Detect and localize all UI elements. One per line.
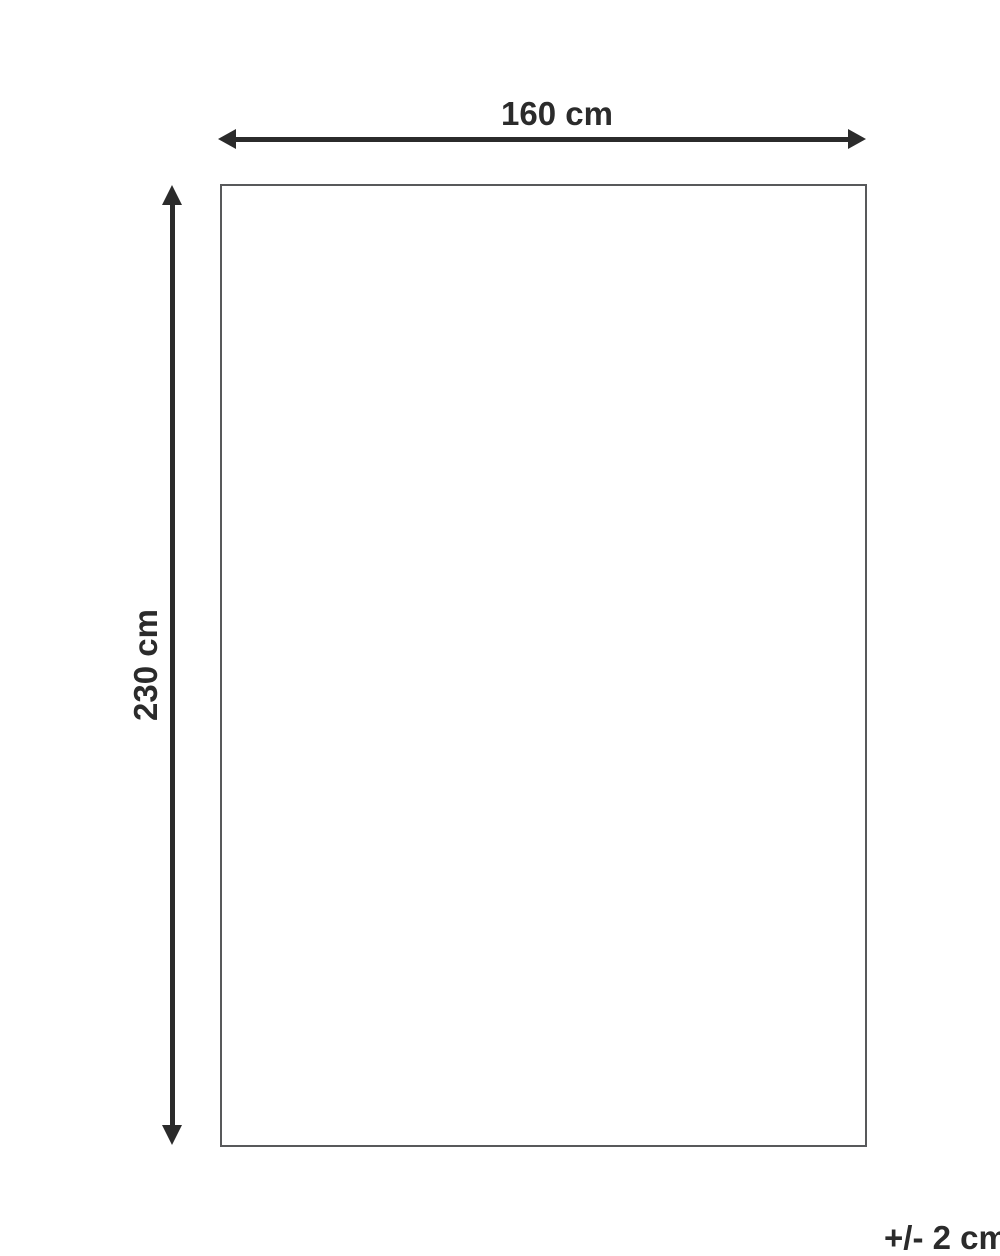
height-dimension-arrow xyxy=(162,185,182,1145)
dimension-diagram: 160 cm 230 cm +/- 2 cm xyxy=(0,0,1000,1250)
tolerance-label: +/- 2 cm xyxy=(884,1220,1000,1256)
arrow-down-icon xyxy=(162,1125,182,1145)
product-outline-rectangle xyxy=(220,184,867,1147)
width-arrow-shaft xyxy=(230,137,854,142)
height-dimension-label: 230 cm xyxy=(128,609,164,721)
height-arrow-shaft xyxy=(170,197,175,1133)
width-dimension-label: 160 cm xyxy=(457,96,657,132)
arrow-right-icon xyxy=(848,129,866,149)
